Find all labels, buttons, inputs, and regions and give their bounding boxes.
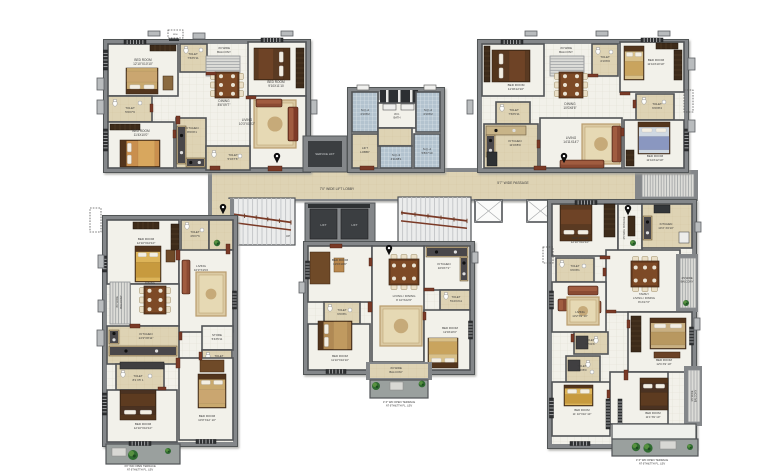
svg-text:BATH: BATH (394, 116, 401, 120)
svg-text:BALCONY: BALCONY (694, 390, 698, 403)
svg-text:12'0 X9' 10": 12'0 X9' 10" (656, 362, 671, 366)
svg-text:14'11X14'7: 14'11X14'7 (563, 140, 579, 144)
svg-text:10'0"X12' 10": 10'0"X12' 10" (198, 418, 216, 422)
svg-text:4'9 WIDE: 4'9 WIDE (681, 276, 692, 280)
svg-text:8'2 X5' 1: 8'2 X5' 1 (132, 378, 143, 382)
svg-text:10'3"X15'2: 10'3"X15'2 (194, 268, 209, 272)
svg-text:11'10X12'10": 11'10X12'10" (646, 158, 663, 162)
svg-text:12'10"X10'10": 12'10"X10'10" (133, 62, 153, 66)
svg-text:LIFT: LIFT (351, 223, 357, 227)
svg-text:11'10"X10'10": 11'10"X10'10" (331, 358, 349, 362)
svg-text:W.M.: W.M. (173, 34, 178, 36)
svg-text:11'0X8'0: 11'0X8'0 (509, 143, 521, 147)
svg-text:AT 6TH&7TH FL. LEV: AT 6TH&7TH FL. LEV (639, 462, 666, 466)
svg-text:11'0X12'10": 11'0X12'10" (508, 87, 524, 91)
svg-text:5'0X7'6": 5'0X7'6" (228, 157, 239, 161)
svg-text:W.C.: W.C. (394, 112, 400, 116)
svg-text:14'3"X8'11": 14'3"X8'11" (138, 336, 153, 340)
svg-text:12'10"X10'10": 12'10"X10'10" (137, 241, 156, 245)
svg-text:11'1"X9' 10": 11'1"X9' 10" (646, 415, 661, 419)
svg-text:3' 6" WD OPEN TERRACE: 3' 6" WD OPEN TERRACE (383, 400, 416, 404)
svg-text:4'6X7'6: 4'6X7'6 (190, 234, 200, 238)
svg-text:12'0X10'0": 12'0X10'0" (443, 330, 457, 334)
svg-text:9'1X17'2": 9'1X17'2" (638, 300, 650, 304)
svg-text:4'9 WIDE PASSAGE: 4'9 WIDE PASSAGE (623, 216, 626, 239)
svg-text:4'1X6'0: 4'1X6'0 (600, 59, 610, 63)
svg-text:4'1X6'2: 4'1X6'2 (360, 112, 370, 116)
svg-text:10'3"X15'2": 10'3"X15'2" (239, 122, 255, 126)
svg-text:BALCONY: BALCONY (559, 50, 573, 54)
svg-text:3'6 WIDE: 3'6 WIDE (690, 390, 694, 401)
svg-text:12'10"X10'10": 12'10"X10'10" (571, 240, 590, 244)
svg-text:8'0X9'1: 8'0X9'1 (187, 130, 197, 134)
svg-text:BALCONY: BALCONY (389, 370, 403, 374)
svg-text:AT 6TH&7TH FL. LEV: AT 6TH&7TH FL. LEV (127, 468, 154, 472)
svg-text:5'10X4'11: 5'10X4'11 (450, 299, 463, 303)
svg-text:BALCONY: BALCONY (681, 280, 694, 284)
svg-text:UP: UP (286, 234, 290, 238)
svg-text:4'1X6'2: 4'1X6'2 (423, 112, 433, 116)
svg-text:5'3X8'0: 5'3X8'0 (577, 368, 587, 372)
svg-text:3' 6" WD OPEN TERRACE: 3' 6" WD OPEN TERRACE (636, 458, 669, 462)
svg-text:9'6"X9'0": 9'6"X9'0" (144, 285, 156, 289)
svg-text:12'10"X10'10": 12'10"X10'10" (134, 426, 153, 430)
svg-text:5'8X7'10: 5'8X7'10 (421, 151, 432, 155)
svg-text:LOBBY: LOBBY (360, 150, 370, 154)
svg-text:BALCONY: BALCONY (119, 295, 123, 309)
svg-text:6'0X8'4: 6'0X8'4 (652, 106, 662, 110)
svg-text:9' 10"X22'0": 9' 10"X22'0" (396, 298, 412, 302)
svg-text:LIFT: LIFT (320, 223, 326, 227)
svg-text:3'0" WD OPEN TERRACE: 3'0" WD OPEN TERRACE (124, 464, 156, 468)
svg-text:BALCONY: BALCONY (217, 50, 231, 54)
svg-text:7'6X5'11: 7'6X5'11 (187, 56, 199, 60)
svg-text:AT 6TH&7TH FL. LEV: AT 6TH&7TH FL. LEV (386, 404, 413, 408)
svg-text:6'0X8'1: 6'0X8'1 (570, 268, 580, 272)
svg-text:13'2"X9' 10": 13'2"X9' 10" (572, 314, 588, 318)
svg-text:11'10X10'10": 11'10X10'10" (647, 62, 664, 66)
svg-text:5'7" WIDE PASSAGE: 5'7" WIDE PASSAGE (497, 181, 529, 185)
svg-text:7'0" WIDE LIFT LOBBY: 7'0" WIDE LIFT LOBBY (320, 187, 355, 191)
svg-text:11'4X10'0": 11'4X10'0" (134, 133, 149, 137)
svg-text:6'0X8'1: 6'0X8'1 (337, 312, 347, 316)
svg-text:9'10X11'10: 9'10X11'10 (268, 84, 284, 88)
svg-text:SERVICE LIFT: SERVICE LIFT (315, 152, 335, 156)
svg-text:4'11X8'1: 4'11X8'1 (391, 157, 402, 161)
svg-text:5'0X7'6: 5'0X7'6 (125, 110, 135, 114)
svg-text:6'7X4'8: 6'7X4'8 (585, 342, 595, 346)
svg-text:10'4" X6'10": 10'4" X6'10" (658, 226, 674, 230)
svg-text:8'6"X9'7": 8'6"X9'7" (218, 103, 231, 107)
svg-text:10'0X7'1": 10'0X7'1" (438, 266, 451, 270)
svg-text:5'4X5'11: 5'4X5'11 (212, 337, 223, 341)
svg-text:11' 10"X10' 10": 11' 10"X10' 10" (573, 412, 592, 416)
svg-text:10'0X8'6": 10'0X8'6" (563, 106, 576, 110)
svg-text:7'6X5'11: 7'6X5'11 (508, 112, 520, 116)
svg-text:11'0X10'0": 11'0X10'0" (333, 262, 347, 266)
